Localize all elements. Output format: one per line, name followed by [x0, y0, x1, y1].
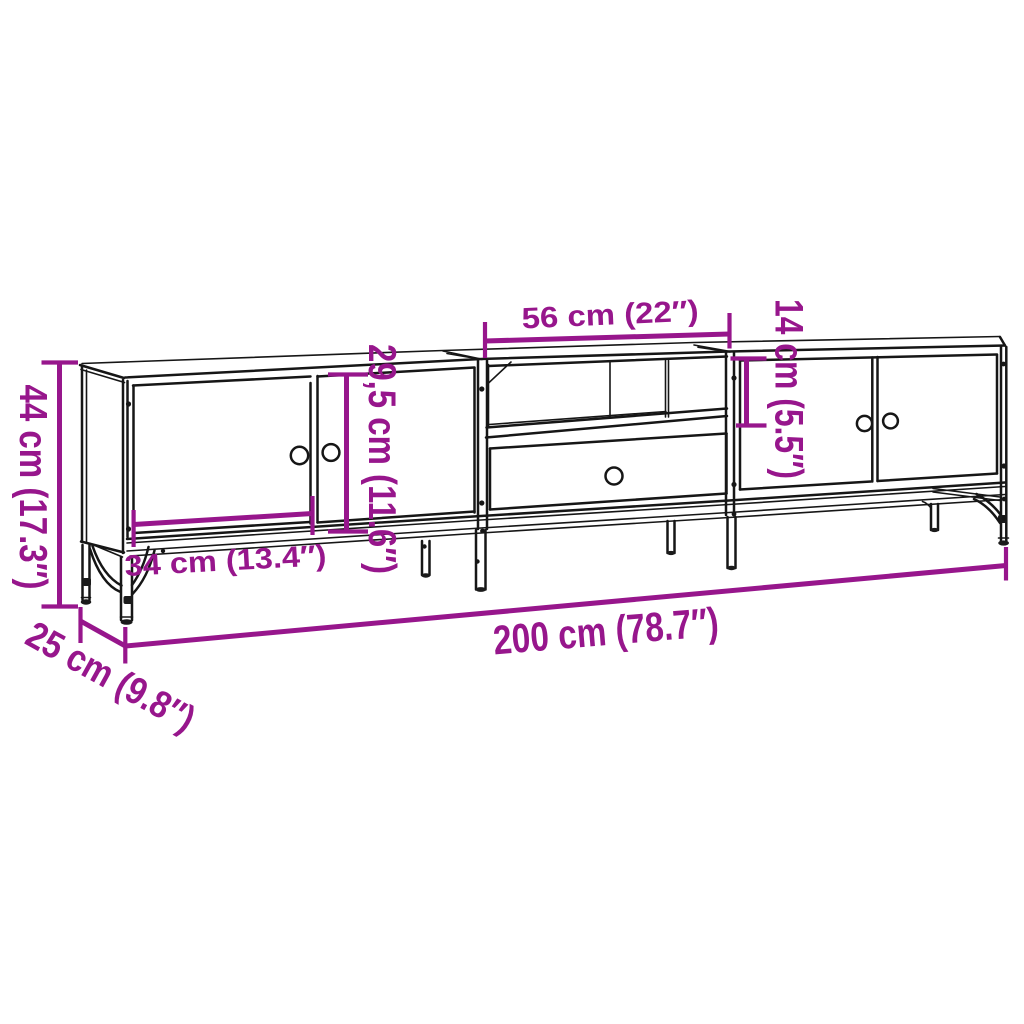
svg-text:14 cm (5.5″): 14 cm (5.5″) [767, 299, 811, 479]
svg-text:29,5 cm (11.6″): 29,5 cm (11.6″) [360, 344, 403, 574]
svg-text:44 cm (17.3″): 44 cm (17.3″) [11, 385, 54, 590]
